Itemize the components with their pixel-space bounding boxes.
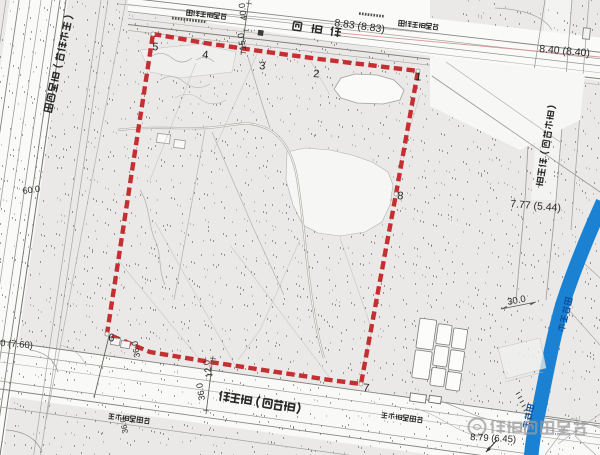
svg-text:3: 3 <box>259 60 266 72</box>
svg-text:8: 8 <box>397 190 404 202</box>
svg-text:6: 6 <box>108 332 115 344</box>
svg-text:4: 4 <box>202 49 209 61</box>
svg-text:1: 1 <box>415 71 422 83</box>
svg-text:0 (7.60): 0 (7.60) <box>0 338 33 351</box>
svg-text:2: 2 <box>313 68 320 80</box>
svg-text:7: 7 <box>363 382 370 394</box>
svg-text:5: 5 <box>152 41 159 53</box>
